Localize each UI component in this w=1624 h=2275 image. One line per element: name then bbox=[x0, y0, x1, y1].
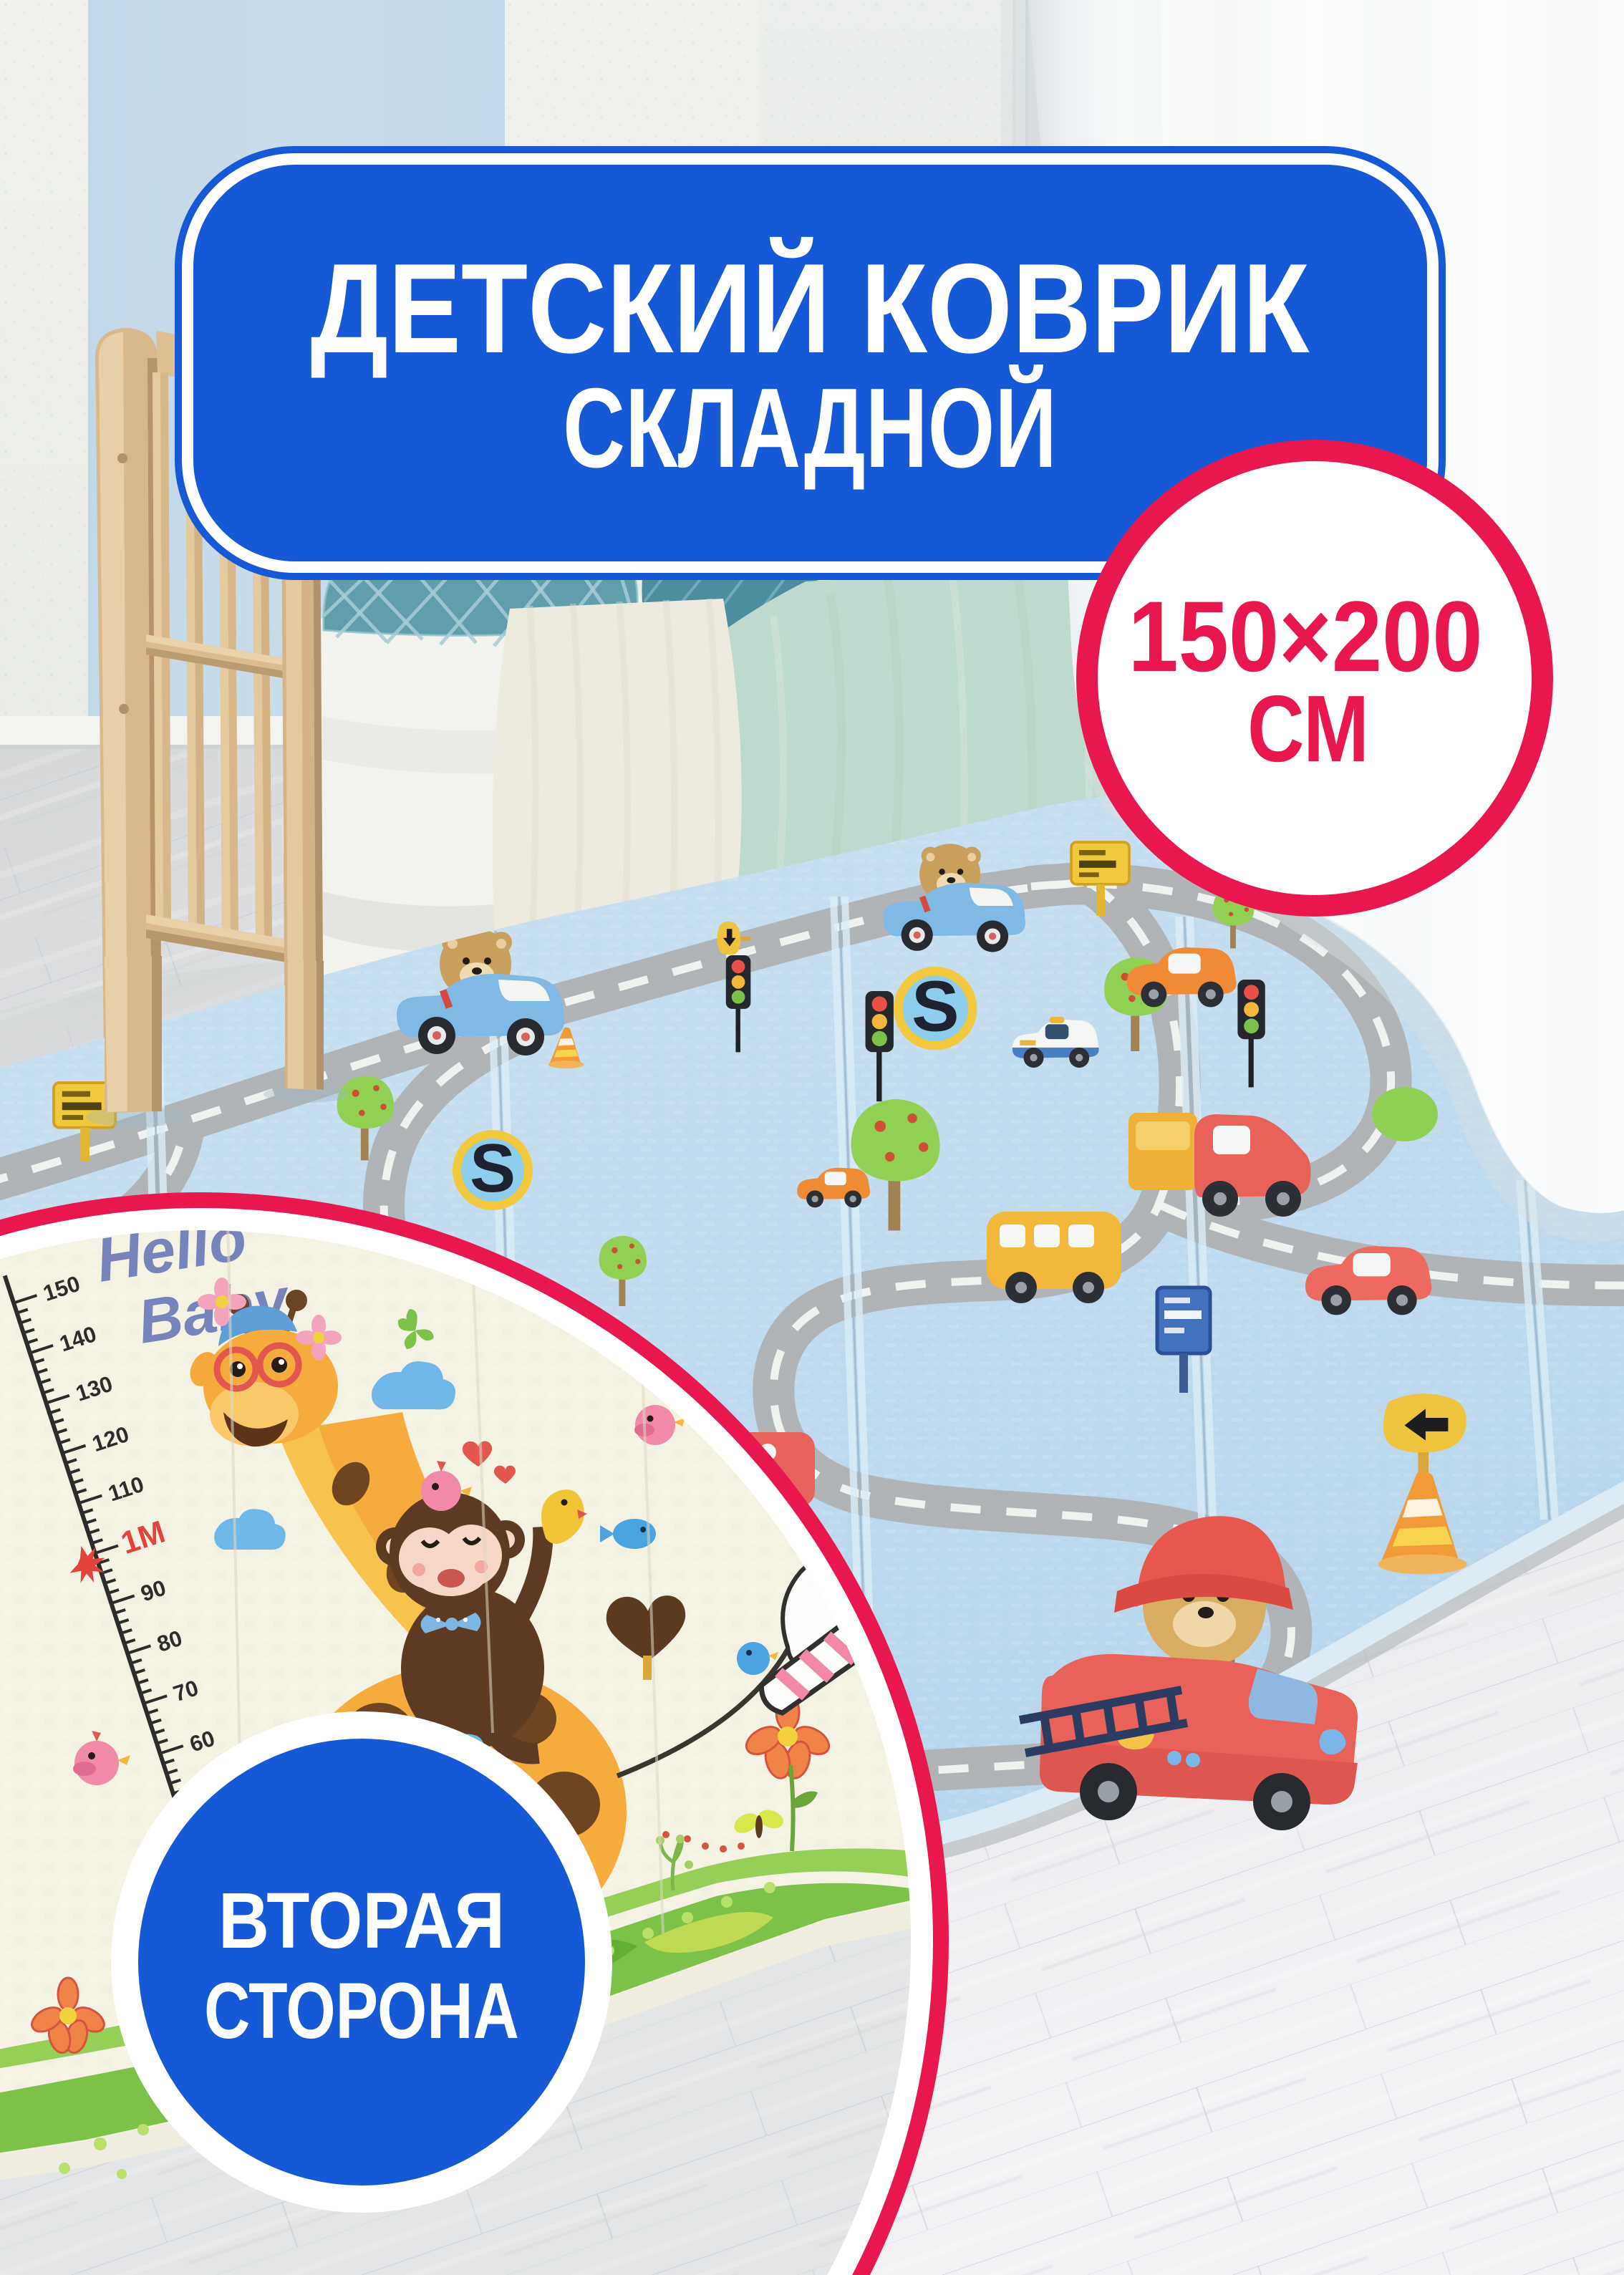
svg-text:СКЛАДНОЙ: СКЛАДНОЙ bbox=[563, 364, 1057, 491]
svg-text:СМ: СМ bbox=[1247, 676, 1369, 781]
svg-text:ДЕТСКИЙ КОВРИК: ДЕТСКИЙ КОВРИК bbox=[311, 236, 1310, 380]
svg-text:ВТОРАЯ: ВТОРАЯ bbox=[218, 1877, 505, 1965]
svg-text:СТОРОНА: СТОРОНА bbox=[204, 1967, 519, 2055]
